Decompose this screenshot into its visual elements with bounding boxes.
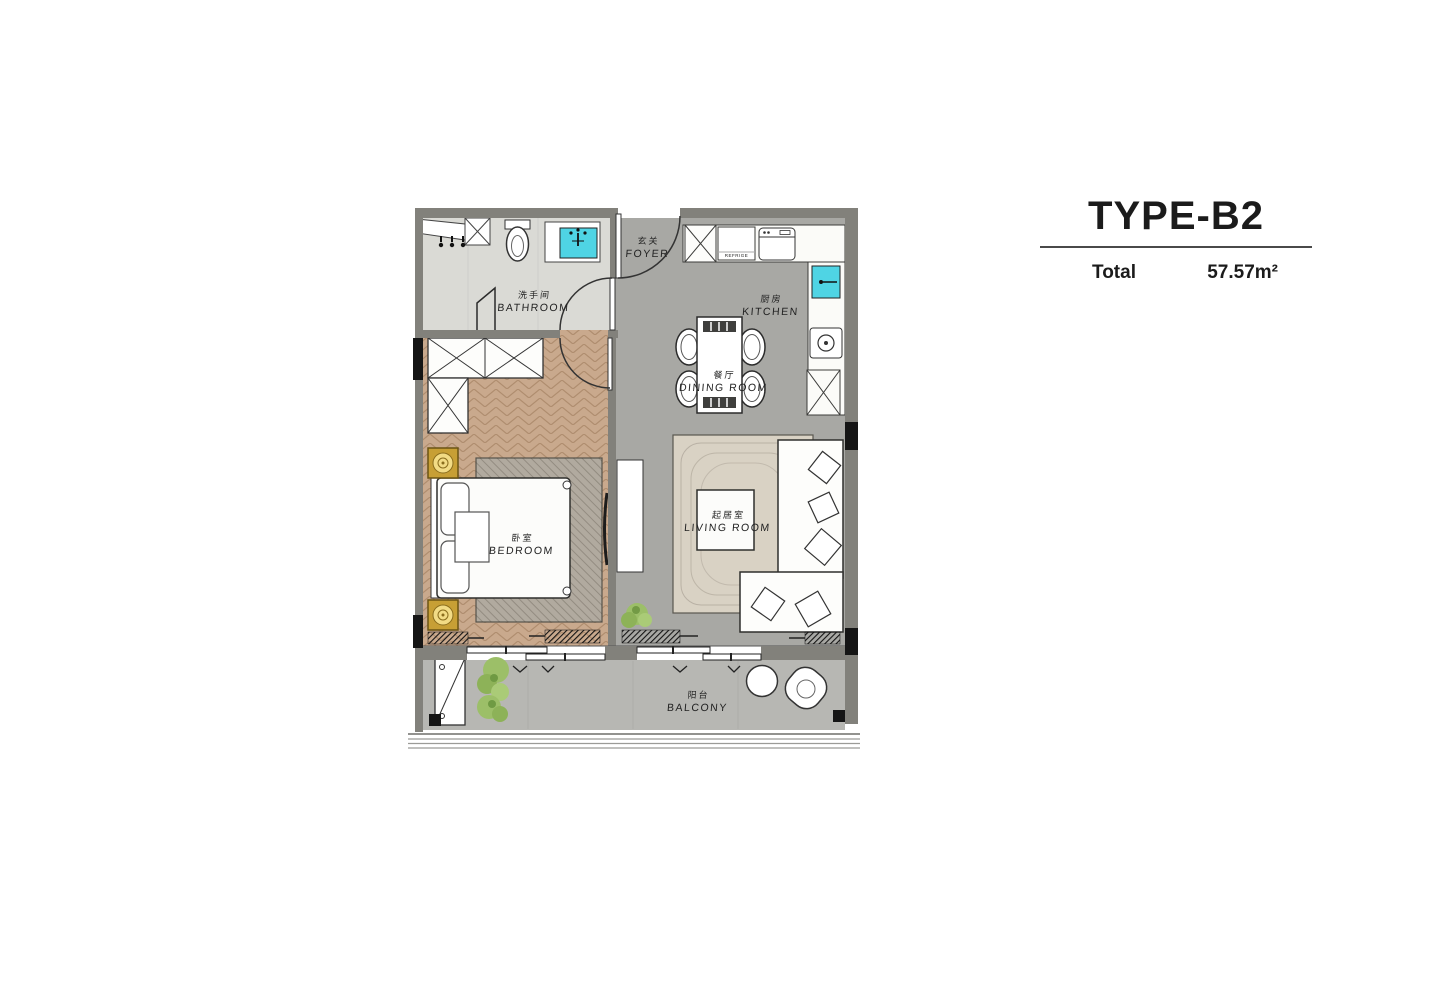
area-value: 57.57m² [1207,262,1278,284]
total-label: Total [1092,262,1136,284]
dining-set [676,317,765,413]
title-block: TYPE-B2 Total 57.57m² [1040,194,1312,284]
refrigerator-label: REFRIGE [725,253,749,258]
nightstand-icon [428,448,458,478]
kitchen-cabinet-icon [807,370,840,415]
dining-chair-icon [739,329,765,365]
nightstand-icon [428,600,458,630]
balcony-table-icon [747,666,778,697]
oven-icon [759,228,795,260]
coffee-table-icon [697,490,754,550]
balcony-railing [408,734,860,748]
plan-type-title: TYPE-B2 [1040,194,1312,238]
kitchen-sink-icon [812,266,840,298]
floor-plan: REFRIGE 玄关 FOYER 洗手间 BATHROOM 厨房 KITCHEN… [408,200,870,760]
total-area-row: Total 57.57m² [1040,248,1312,284]
dining-chair-icon [739,371,765,407]
page: REFRIGE 玄关 FOYER 洗手间 BATHROOM 厨房 KITCHEN… [0,0,1456,1000]
toilet-icon [505,220,530,261]
bathroom-cabinet-icon [465,218,490,245]
vanity-sink-icon [545,222,600,262]
foyer-cabinet-icon [685,225,716,262]
bed-icon [431,476,571,598]
floor-plan-drawing: REFRIGE [408,200,870,760]
tv-cabinet-icon [617,460,643,572]
cooktop-icon [810,328,842,358]
